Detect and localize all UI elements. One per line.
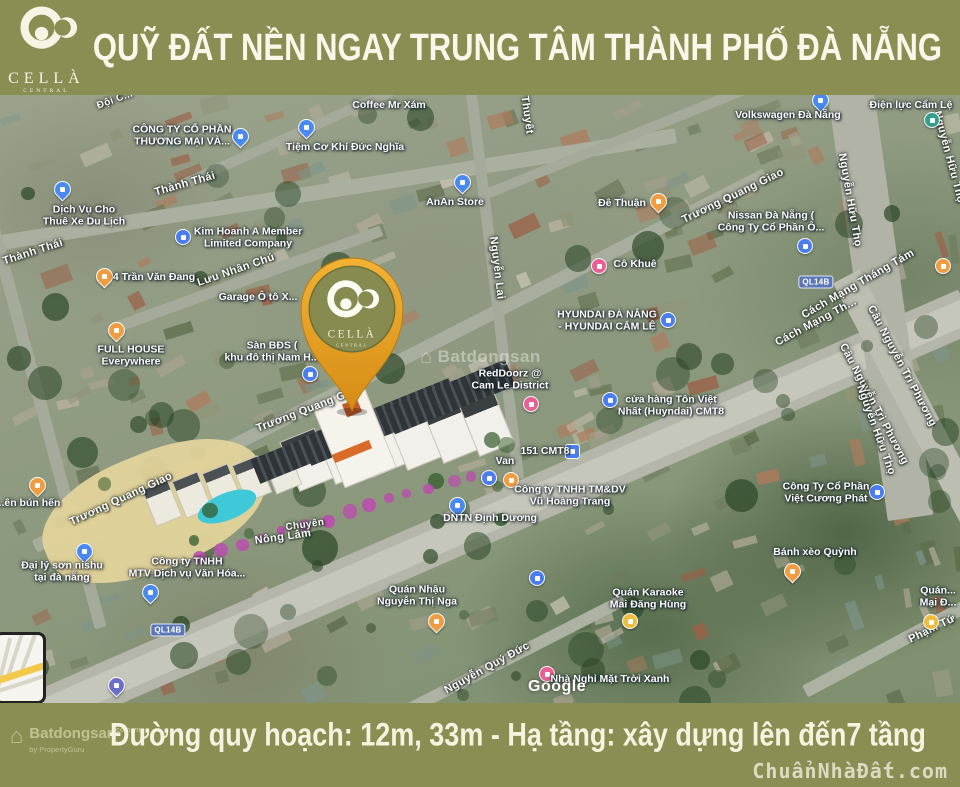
map-building (446, 136, 469, 157)
poi-bar-icon[interactable] (622, 613, 638, 629)
map-building (647, 521, 672, 541)
map-tree (565, 245, 591, 271)
map-street-label: Thuyết (518, 95, 535, 135)
project-flower-tree (402, 489, 411, 498)
poi-bar-icon[interactable] (923, 614, 939, 630)
map[interactable]: CELLÀ CENTRAL Google ⌂ Batdongsan Đội C.… (0, 95, 960, 703)
place-pin-icon[interactable] (450, 170, 474, 194)
map-place-label[interactable]: Tiệm Cơ Khí Đức Nghĩa (286, 142, 404, 154)
map-building (664, 254, 693, 273)
bar-icon[interactable] (923, 614, 939, 630)
poi-restaurant-pin-icon[interactable] (784, 563, 801, 580)
map-building (680, 567, 707, 583)
map-tree (676, 343, 703, 370)
map-tree (226, 649, 252, 675)
map-building (550, 596, 571, 615)
map-building (652, 649, 683, 671)
road-shield-ql14b: QL14B (798, 276, 833, 289)
map-building (90, 313, 104, 325)
map-building (825, 635, 849, 654)
map-building (487, 109, 515, 130)
map-building (137, 257, 151, 268)
map-tree (753, 369, 778, 394)
map-tree (711, 353, 733, 375)
map-street-label: Đội C... (95, 95, 134, 112)
map-building (326, 615, 348, 632)
map-place-label[interactable]: 151 CMT8 (520, 446, 569, 458)
bar-icon[interactable] (622, 613, 638, 629)
restaurant-icon[interactable] (935, 258, 951, 274)
map-building (886, 689, 905, 703)
map-place-label[interactable]: Công ty TNHHMTV Dịch vụ Văn Hóa... (129, 556, 246, 580)
map-tree (511, 671, 521, 681)
poi-lodging-icon[interactable] (591, 258, 607, 274)
map-tree (317, 666, 337, 686)
project-green-tree (244, 528, 255, 539)
map-place-label[interactable]: Volkswagen Đà Nẵng (735, 110, 840, 122)
place-pin-icon[interactable] (50, 177, 74, 201)
place-pin-icon[interactable] (228, 124, 252, 148)
briefcase-icon[interactable] (602, 392, 618, 408)
power-icon[interactable] (924, 112, 940, 128)
restaurant-pin-icon[interactable] (424, 609, 448, 633)
map-building (691, 522, 710, 536)
map-tree (280, 604, 296, 620)
map-place-label[interactable]: Quán...Mại Đ... (920, 585, 957, 609)
project-flower-tree (236, 539, 249, 552)
map-place-label[interactable]: FULL HOUSEEverywhere (98, 344, 165, 368)
map-tree (919, 448, 949, 478)
header-title: QUỸ ĐẤT NỀN NGAY TRUNG TÂM THÀNH PHỐ ĐÀ … (93, 26, 960, 70)
map-building (953, 546, 960, 572)
lodging-icon[interactable] (523, 396, 539, 412)
brand-name: CELLÀ (8, 70, 85, 88)
poi-gas-station-icon[interactable] (108, 677, 125, 694)
map-building (611, 570, 632, 587)
map-place-label[interactable]: Kim Hoanh A MemberLimited Company (194, 226, 302, 250)
project-flower-tree (423, 484, 434, 495)
map-place-label[interactable]: RedDoorz @Cam Le District (471, 368, 548, 392)
map-building (687, 375, 719, 395)
map-tree (568, 632, 604, 668)
footer-headline: Đường quy hoạch: 12m, 33m - Hạ tầng: xây… (110, 717, 900, 754)
map-building (127, 291, 146, 311)
map-building (508, 213, 541, 240)
briefcase-icon[interactable] (175, 229, 191, 245)
map-building (0, 113, 21, 125)
map-tree (884, 205, 900, 221)
map-building (711, 265, 734, 283)
map-place-label[interactable]: Dịch Vụ ChoThuê Xe Du Lịch (43, 204, 125, 228)
poi-lodging-icon[interactable] (523, 396, 539, 412)
map-tree (459, 610, 469, 620)
map-place-label[interactable]: Đê Thuận (598, 198, 646, 210)
map-tree (366, 623, 376, 633)
poi-briefcase-icon[interactable] (175, 229, 191, 245)
map-building (124, 627, 145, 640)
briefcase-icon[interactable] (481, 470, 497, 486)
map-tree (423, 549, 438, 564)
map-building (163, 321, 194, 340)
poi-restaurant-pin-icon[interactable] (108, 322, 125, 339)
restaurant-pin-icon[interactable] (104, 318, 128, 342)
map-building (809, 453, 828, 468)
gas-station-icon[interactable] (104, 673, 128, 697)
map-building (32, 609, 52, 626)
poi-place-pin-icon[interactable] (454, 174, 471, 191)
road-shield-ql14b: QL14B (150, 624, 185, 637)
map-tree (690, 650, 710, 670)
restaurant-pin-icon[interactable] (25, 473, 49, 497)
poi-place-pin-icon[interactable] (298, 119, 315, 136)
map-place-label[interactable]: Công Ty Cổ PhầnViệt Cương Phát (783, 481, 870, 505)
map-place-label[interactable]: Coffee Mr Xám (352, 100, 426, 112)
poi-briefcase-icon[interactable] (602, 392, 618, 408)
project-flower-tree (466, 471, 476, 481)
cella-logo-icon (9, 2, 83, 68)
map-tree (928, 490, 951, 513)
restaurant-pin-icon[interactable] (646, 189, 670, 213)
minimap-inset[interactable] (0, 632, 46, 703)
map-tree (776, 394, 790, 408)
map-tree (526, 600, 548, 622)
map-place-label[interactable]: Van (496, 456, 515, 468)
map-building (26, 158, 55, 172)
brand-sub: CENTRAL (23, 88, 69, 94)
map-building (692, 622, 709, 640)
project-flower-tree (362, 498, 376, 512)
header-banner: CELLÀ CENTRAL QUỸ ĐẤT NỀN NGAY TRUNG TÂM… (0, 0, 960, 95)
map-building (516, 271, 532, 288)
poi-restaurant-pin-icon[interactable] (29, 477, 46, 494)
map-tree (861, 340, 873, 352)
map-building (573, 387, 587, 397)
map-building (687, 232, 717, 256)
map-tree (42, 293, 70, 321)
map-building (649, 332, 670, 353)
map-building (900, 521, 911, 536)
map-place-label[interactable]: Đại lý sơn nishutại đà nẵng (21, 560, 103, 584)
map-building (411, 643, 441, 665)
map-place-label[interactable]: Bánh xèo Quỳnh (773, 547, 856, 559)
map-place-label[interactable]: 4 Trần Văn Đang (113, 272, 195, 284)
map-building (875, 574, 885, 589)
map-place-label[interactable]: Điện lực Cẩm Lệ (870, 100, 953, 112)
map-tree (145, 410, 161, 426)
poi-place-pin-icon[interactable] (812, 95, 829, 109)
map-building (807, 146, 825, 166)
map-watermark: ⌂ Batdongsan (420, 347, 541, 367)
map-building (933, 669, 954, 698)
map-place-label[interactable]: Quán KaraokeMai Đăng Hùng (610, 587, 686, 611)
project-flower-tree (384, 493, 395, 504)
map-building (903, 588, 912, 608)
map-building (760, 593, 787, 616)
cella-map-pin[interactable]: CELLÀ CENTRAL (290, 250, 414, 418)
map-building (80, 366, 94, 379)
place-pin-icon[interactable] (294, 115, 318, 139)
map-place-label[interactable]: Công ty TNHH TM&DVVũ Hoàng Trang (514, 484, 625, 508)
poi-place-pin-icon[interactable] (54, 181, 71, 198)
briefcase-icon[interactable] (660, 312, 676, 328)
map-building (710, 570, 734, 592)
map-place-label[interactable]: cửa hàng Tôn ViệtNhất (Huyndai) CMT8 (618, 394, 724, 418)
map-tree (464, 532, 491, 559)
poi-briefcase-icon[interactable] (481, 470, 497, 486)
footer-site-url[interactable]: ChuẩnNhàĐất.com (752, 759, 948, 783)
map-tree (21, 187, 34, 200)
map-tree (781, 408, 794, 421)
map-building (214, 669, 229, 684)
map-building (613, 99, 642, 120)
map-tree (725, 479, 758, 512)
map-building (389, 193, 417, 215)
poi-power-icon[interactable] (924, 112, 940, 128)
map-place-label[interactable]: ...ên bún hến (0, 498, 60, 510)
poi-briefcase-icon[interactable] (529, 570, 545, 586)
lodging-icon[interactable] (591, 258, 607, 274)
map-building (849, 438, 866, 467)
project-green-tree (189, 535, 199, 545)
map-place-label[interactable]: Cô Khuê (613, 259, 656, 271)
poi-restaurant-pin-icon[interactable] (650, 193, 667, 210)
map-building (80, 143, 113, 167)
project-green-tree (98, 477, 111, 490)
map-street-label: Nguyễn Quý Đức (442, 640, 531, 697)
map-tree (708, 670, 726, 688)
map-building (264, 110, 285, 122)
map-tree (28, 366, 63, 401)
poi-briefcase-icon[interactable] (660, 312, 676, 328)
map-tree (275, 181, 301, 207)
brand-logo: CELLÀ CENTRAL (0, 0, 93, 95)
pin-brand-name: CELLÀ (328, 329, 377, 341)
pin-brand-sub: CENTRAL (336, 343, 368, 348)
map-building (732, 535, 757, 549)
google-attribution[interactable]: Google (528, 678, 586, 696)
map-place-label[interactable]: AnAn Store (426, 197, 484, 209)
map-tree (457, 689, 469, 701)
project-flower-tree (343, 504, 357, 518)
map-place-label[interactable]: DNTN Định Dương (443, 513, 537, 525)
briefcase-icon[interactable] (797, 238, 813, 254)
map-building (109, 129, 122, 142)
project-green-tree (202, 503, 218, 519)
map-building (13, 519, 27, 535)
poi-briefcase-icon[interactable] (869, 484, 885, 500)
map-building (585, 521, 606, 536)
map-place-label[interactable]: Nissan Đà Nẵng (Công Ty Cổ Phần Ô... (718, 210, 825, 234)
briefcase-icon[interactable] (529, 570, 545, 586)
poi-briefcase-icon[interactable] (797, 238, 813, 254)
map-building (40, 263, 73, 289)
footer-banner: ⌂ Batdongsancom.vn by PropertyGuru Đường… (0, 703, 960, 787)
map-building (468, 607, 499, 627)
restaurant-pin-icon[interactable] (780, 559, 804, 583)
project-green-tree (498, 437, 514, 453)
watermark-house-icon: ⌂ (420, 347, 433, 367)
map-building (756, 469, 780, 486)
poi-restaurant-pin-icon[interactable] (96, 268, 113, 285)
map-building (687, 124, 701, 136)
map-place-label[interactable]: Quán NhậuNguyễn Thị Nga (377, 584, 457, 608)
map-tree (67, 437, 98, 468)
poi-place-pin-icon[interactable] (76, 543, 93, 560)
map-tree (679, 686, 711, 703)
map-place-label[interactable]: Garage Ô tô X... (219, 292, 298, 304)
map-place-label[interactable]: HYUNDAI ĐÀ NẴNG- HYUNDAI CẨM LỆ (557, 309, 657, 333)
briefcase-icon[interactable] (869, 484, 885, 500)
map-building (845, 600, 865, 631)
place-pin-icon[interactable] (138, 580, 162, 604)
map-building (199, 95, 229, 115)
map-tree (170, 642, 198, 670)
map-building (626, 655, 647, 674)
poi-restaurant-pin-icon[interactable] (428, 613, 445, 630)
project-flower-tree (448, 475, 461, 488)
map-building (171, 154, 192, 167)
map-place-label[interactable]: CÔNG TY CỔ PHẦNTHƯƠNG MẠI VÀ... (133, 124, 232, 148)
poi-restaurant-icon[interactable] (935, 258, 951, 274)
batdongsan-house-icon: ⌂ (10, 725, 23, 747)
ad-poster: CELLÀ CENTRAL QUỸ ĐẤT NỀN NGAY TRUNG TÂM… (0, 0, 960, 787)
map-building (256, 387, 283, 404)
poi-place-pin-icon[interactable] (232, 128, 249, 145)
poi-place-pin-icon[interactable] (142, 584, 159, 601)
